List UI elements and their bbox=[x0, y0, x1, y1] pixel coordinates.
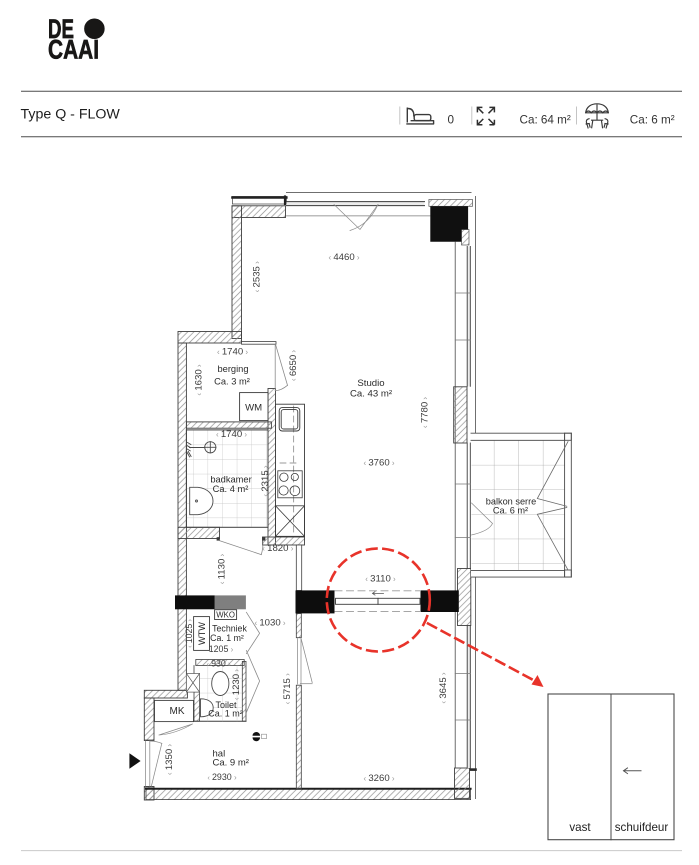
svg-text:Type Q - FLOW: Type Q - FLOW bbox=[21, 107, 121, 123]
svg-text:Ca. 9 m²: Ca. 9 m² bbox=[213, 758, 249, 769]
svg-text:WTW: WTW bbox=[197, 622, 207, 645]
svg-text:‹ 930 ›: ‹ 930 › bbox=[206, 659, 231, 669]
svg-text:‹ 7780 ›: ‹ 7780 › bbox=[419, 397, 430, 428]
svg-text:‹ 3260 ›: ‹ 3260 › bbox=[363, 773, 394, 784]
svg-text:‹ 1130 ›: ‹ 1130 › bbox=[217, 553, 228, 584]
svg-text:‹ 1030 ›: ‹ 1030 › bbox=[254, 618, 285, 629]
svg-text:‹ 1025 ›: ‹ 1025 › bbox=[184, 619, 194, 648]
svg-text:CAAI: CAAI bbox=[48, 35, 99, 65]
svg-text:0: 0 bbox=[448, 114, 455, 127]
svg-text:‹ 6650 ›: ‹ 6650 › bbox=[288, 350, 299, 381]
svg-text:‹ 1350 ›: ‹ 1350 › bbox=[164, 744, 175, 775]
svg-text:‹ 5715 ›: ‹ 5715 › bbox=[282, 673, 293, 704]
svg-text:‹ 1820 ›: ‹ 1820 › bbox=[262, 543, 293, 554]
svg-text:‹ 1630 ›: ‹ 1630 › bbox=[194, 364, 205, 395]
svg-text:schuifdeur: schuifdeur bbox=[615, 821, 669, 834]
svg-text:Ca: 6 m²: Ca: 6 m² bbox=[630, 114, 675, 127]
svg-text:‹ 2535 ›: ‹ 2535 › bbox=[251, 261, 262, 292]
svg-text:Techniek: Techniek bbox=[212, 624, 247, 634]
svg-text:Ca. 1 m²: Ca. 1 m² bbox=[208, 708, 243, 718]
svg-text:‹ 3645 ›: ‹ 3645 › bbox=[438, 672, 449, 703]
svg-text:‹ 1740 ›: ‹ 1740 › bbox=[216, 429, 247, 440]
svg-text:badkamer: badkamer bbox=[210, 475, 251, 485]
svg-text:vast: vast bbox=[569, 821, 591, 834]
svg-text:berging: berging bbox=[217, 364, 248, 374]
svg-text:‹ 1230 ›: ‹ 1230 › bbox=[231, 669, 242, 700]
svg-text:‹ 1740 ›: ‹ 1740 › bbox=[217, 347, 248, 358]
svg-text:‹ 3760 ›: ‹ 3760 › bbox=[363, 458, 394, 469]
svg-text:‹ 3110 ›: ‹ 3110 › bbox=[365, 574, 396, 585]
svg-text:Ca. 43 m²: Ca. 43 m² bbox=[350, 388, 393, 399]
svg-text:‹ 4460 ›: ‹ 4460 › bbox=[328, 252, 359, 263]
svg-text:MK: MK bbox=[170, 706, 185, 717]
svg-text:Ca. 3 m²: Ca. 3 m² bbox=[214, 377, 250, 387]
svg-text:WKO: WKO bbox=[216, 610, 235, 619]
svg-text:Ca. 4 m²: Ca. 4 m² bbox=[213, 484, 249, 494]
svg-text:WM: WM bbox=[245, 403, 262, 414]
svg-text:‹ 2315 ›: ‹ 2315 › bbox=[260, 465, 271, 496]
svg-text:1205 ›: 1205 › bbox=[209, 644, 234, 654]
svg-text:Ca: 64 m²: Ca: 64 m² bbox=[520, 114, 571, 127]
svg-text:Ca. 1 m²: Ca. 1 m² bbox=[210, 633, 244, 643]
svg-text:Ca. 6 m²: Ca. 6 m² bbox=[493, 506, 528, 516]
svg-text:‹ 2930 ›: ‹ 2930 › bbox=[207, 772, 237, 782]
